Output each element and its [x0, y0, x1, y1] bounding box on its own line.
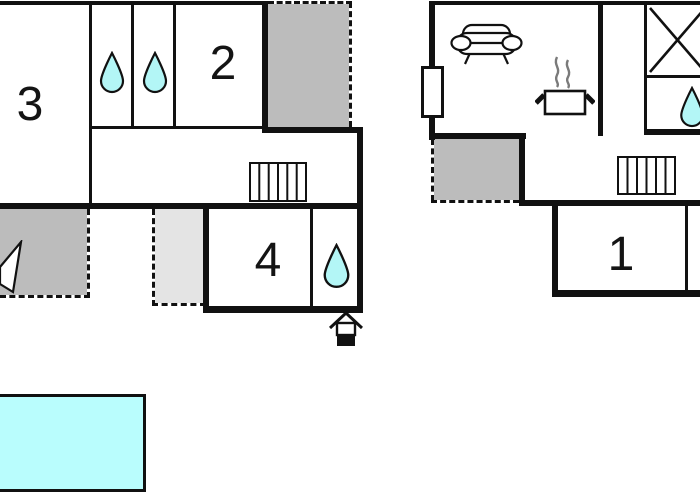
cooking-pot-icon [535, 54, 595, 116]
balcony-area [268, 4, 349, 127]
wall [0, 203, 363, 209]
wall [310, 209, 313, 306]
wall [552, 290, 700, 297]
wall [357, 127, 363, 313]
dashed-boundary [349, 2, 352, 127]
dashed-boundary [152, 209, 155, 306]
wall [552, 200, 558, 297]
dashed-boundary [152, 303, 206, 306]
crossed-box-icon [647, 4, 700, 76]
room-1-label: 1 [593, 228, 649, 282]
wall [262, 1, 268, 133]
water-drop-icon [99, 51, 125, 94]
wall [89, 4, 92, 204]
room-4-label: 4 [240, 234, 296, 288]
stairs-icon [249, 162, 307, 202]
wall [429, 133, 526, 139]
dashed-boundary [431, 139, 434, 201]
water-drop-icon [322, 243, 351, 289]
dashed-boundary [431, 200, 519, 203]
wall [598, 1, 603, 136]
wall [519, 200, 700, 206]
sofa-icon [450, 23, 523, 66]
room-3-label: 3 [2, 78, 58, 132]
dashed-boundary [0, 295, 90, 298]
water-drop-icon [142, 51, 168, 94]
swimming-pool [0, 394, 146, 492]
wall [262, 127, 363, 133]
window-icon [421, 66, 444, 118]
wall [685, 206, 688, 290]
dashed-boundary [268, 1, 352, 4]
wall [644, 129, 700, 135]
room-2-label: 2 [195, 37, 251, 91]
wall [131, 4, 134, 128]
wall [0, 1, 268, 5]
wall [173, 4, 176, 128]
covered-terrace-area [155, 209, 203, 303]
balcony-area [434, 139, 519, 200]
wall [519, 133, 525, 206]
water-drop-icon [679, 86, 700, 128]
stairs-icon [617, 156, 676, 195]
pennant-icon [0, 240, 24, 295]
floorplan-canvas: 3 2 4 [0, 0, 700, 500]
dashed-boundary [87, 209, 90, 298]
wall [92, 126, 265, 129]
entrance-icon [329, 311, 363, 348]
wall [203, 203, 209, 313]
